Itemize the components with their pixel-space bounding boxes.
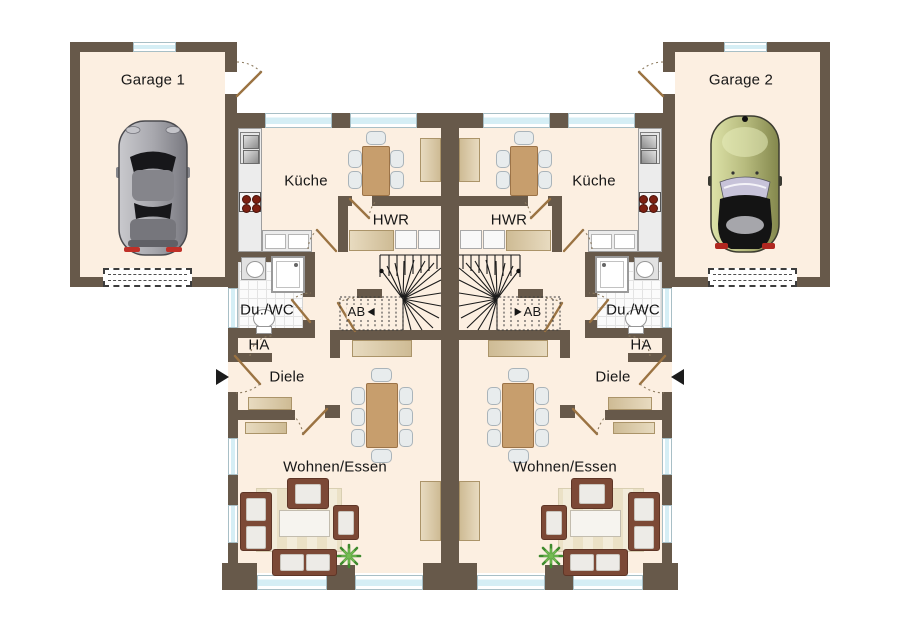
stair-marker-right: AB: [514, 305, 543, 319]
car-gray-top-view: [116, 117, 190, 259]
unit-right-geometry: [0, 0, 900, 636]
stair-marker-right-text: AB: [524, 305, 542, 319]
room-label-showerwc-left: Du./WC: [240, 302, 294, 319]
winder-staircase: [459, 255, 520, 330]
room-label-garage-2: Garage 2: [709, 72, 773, 89]
door-swing-arcs: [523, 62, 664, 434]
stair-direction-arrow-icon: [515, 308, 522, 316]
car-olive-top-view: [708, 112, 782, 256]
room-label-showerwc-right: Du./WC: [606, 302, 660, 319]
room-label-garage-1: Garage 1: [121, 72, 185, 89]
floor-plan: Garage 1 Garage 2 Küche Küche HWR HWR Du…: [0, 0, 900, 636]
room-label-hallway-right: Diele: [595, 369, 630, 386]
doors-stairs-overlay: [0, 0, 900, 636]
room-label-utility-right: HWR: [491, 212, 527, 229]
plant-icon: [540, 545, 562, 567]
room-label-hallway-left: Diele: [269, 369, 304, 386]
room-label-living-left: Wohnen/Essen: [283, 459, 387, 476]
room-label-utility-left: HWR: [373, 212, 409, 229]
room-label-kitchen-left: Küche: [284, 173, 328, 190]
stair-newel-post: [516, 269, 520, 273]
stair-direction-arrow-icon: [367, 308, 374, 316]
stair-marker-left: AB: [347, 305, 376, 319]
room-label-living-right: Wohnen/Essen: [513, 459, 617, 476]
room-label-kitchen-right: Küche: [572, 173, 616, 190]
stair-marker-left-text: AB: [348, 305, 366, 319]
room-label-ha-left: HA: [248, 337, 269, 354]
room-label-ha-right: HA: [630, 337, 651, 354]
